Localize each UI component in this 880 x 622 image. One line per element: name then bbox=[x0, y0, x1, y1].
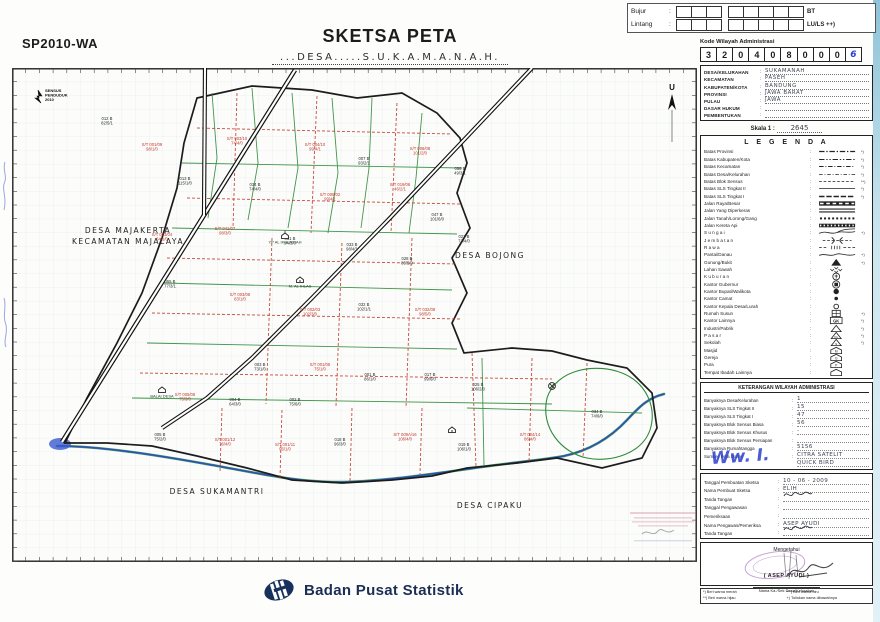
coord-suffix: BT bbox=[807, 9, 815, 15]
parcel-code: 86/4/0 bbox=[524, 437, 536, 442]
sketsa-label: Nama Pengawas/Pemeriksa bbox=[704, 523, 778, 528]
admin-fields-box: DESA/KELURAHAN:SUKAMANAHKECAMATAN:PASEHK… bbox=[700, 65, 873, 121]
sketsa-row: Tanda Tangan: bbox=[704, 528, 869, 537]
legend-item-note: *) bbox=[861, 333, 869, 338]
keterangan-value: 56 bbox=[797, 420, 869, 427]
sketsa-row: Pemeriksaan: bbox=[704, 510, 869, 519]
legend-item-label: Batas Kabupaten/Kota bbox=[704, 157, 810, 162]
kepala-desa-caption: Nama Ka./Sek Desa/Kelurahan bbox=[753, 587, 821, 593]
coord-cell bbox=[676, 6, 692, 18]
parcel-code: 49/3/1 bbox=[454, 171, 466, 176]
parcel-code: 98/3/0 bbox=[219, 231, 231, 236]
coord-cell bbox=[773, 6, 789, 18]
coord-cells bbox=[677, 19, 804, 31]
parcel-code: 99/6/0 bbox=[424, 377, 436, 382]
legend-item-label: Batas Kecamatan bbox=[704, 164, 810, 169]
legend-item-note: *) bbox=[861, 194, 869, 199]
sketsa-row: Tanggal Pembuatan Sketsa:10 - 06 - 2009 bbox=[704, 476, 869, 485]
keterangan-label: Banyaknya SLS Tingkat I bbox=[704, 414, 792, 419]
field-value: SUKAMANAH bbox=[765, 68, 869, 75]
coord-cell bbox=[788, 6, 804, 18]
coord-cell bbox=[758, 6, 774, 18]
coord-suffix: LU/LS ++) bbox=[807, 22, 835, 28]
coord-cell bbox=[773, 19, 789, 31]
legend-box: L E G E N D A Batas Provinsi:*)Batas Kab… bbox=[700, 135, 873, 379]
agency-name: Badan Pusat Statistik bbox=[304, 582, 464, 599]
legend-item-label: S u n g a i bbox=[704, 230, 810, 235]
field-label: KABUPATEN/KOTA bbox=[704, 85, 760, 90]
coord-label: Bujur bbox=[631, 8, 669, 15]
keterangan-value2: QUICK BIRD bbox=[797, 460, 869, 467]
coordinate-box: Bujur:BTLintang:LU/LS ++) bbox=[627, 3, 876, 33]
admin-field-row: DASAR HUKUM: bbox=[704, 104, 869, 111]
keterangan-row: Banyaknya SLS Tingkat II:15 bbox=[704, 403, 869, 411]
sketsa-row: Tanda Tangan: bbox=[704, 493, 869, 502]
parcel-code: 73/1/0 bbox=[254, 367, 266, 372]
code-digit: 0 bbox=[765, 48, 781, 61]
footer: Badan Pusat Statistik bbox=[262, 577, 464, 603]
sketsa-info-box: Tanggal Pembuatan Sketsa:10 - 06 - 2009N… bbox=[700, 473, 873, 539]
keterangan-row: Banyaknya SLS Tingkat I:47 bbox=[704, 411, 869, 419]
legend-item-label: R a w a bbox=[704, 245, 810, 250]
scale-value: 2645 bbox=[777, 124, 823, 133]
parcel-code: 98/4/1 bbox=[346, 247, 358, 252]
svg-text:U: U bbox=[669, 83, 675, 92]
legend-item-label: Batas Provinsi bbox=[704, 149, 810, 154]
parcel-code: 46/2/1 bbox=[394, 187, 406, 192]
field-label: PEMBENTUKAN bbox=[704, 113, 760, 118]
parcel-code: 77/3/1 bbox=[164, 284, 176, 289]
code-digit: 2 bbox=[717, 48, 733, 61]
legend-item-label: Gereja bbox=[704, 355, 810, 360]
page-title: SKETSA PETA bbox=[170, 26, 610, 47]
legend-item-label: Batas Desa/Kelurahan bbox=[704, 172, 810, 177]
code-digit: 6 bbox=[846, 48, 861, 61]
legend-item-note: *) bbox=[861, 149, 869, 154]
right-panel: Kode Wilayah Administrasi 3204080006 DES… bbox=[700, 38, 873, 604]
parcel-code: 75/6/0 bbox=[289, 402, 301, 407]
form-code: SP2010-WA bbox=[22, 36, 98, 51]
keterangan-label: Banyaknya Blok Sensus Biasa bbox=[704, 422, 792, 427]
lake-blob bbox=[49, 438, 71, 450]
field-label: KECAMATAN bbox=[704, 77, 760, 82]
code-digit: 0 bbox=[798, 48, 814, 61]
keterangan-value: 5156 bbox=[797, 444, 869, 451]
field-value: JAWA bbox=[765, 97, 869, 104]
map-canvas: SENSUSPENDUDUK2010 U DESA MAJAKERTAKECAM… bbox=[12, 68, 697, 562]
legend-item-symbol bbox=[815, 368, 861, 376]
field-label: DASAR HUKUM bbox=[704, 106, 760, 111]
coord-cell bbox=[728, 19, 744, 31]
admin-code-digits: 3204080006 bbox=[700, 47, 862, 62]
parcel-code: 106/2/0 bbox=[471, 387, 486, 392]
keterangan-value bbox=[797, 442, 869, 443]
parcel-code: 101/2/0 bbox=[413, 151, 428, 156]
keterangan-label: Banyaknya Blok Sensus Khusus bbox=[704, 430, 792, 435]
legend-item-note: *) bbox=[861, 157, 869, 162]
scale-row: Skala 1 : 2645 bbox=[700, 124, 873, 132]
parcel-code: 102/1/1 bbox=[357, 307, 372, 312]
keterangan-label: Banyaknya SLS Tingkat II bbox=[704, 406, 792, 411]
sketsa-label: Tanda Tangan bbox=[704, 531, 778, 536]
legend-item-note: **) bbox=[861, 179, 869, 184]
coord-cell bbox=[728, 6, 744, 18]
keterangan-value: - bbox=[797, 428, 869, 435]
keterangan-box: KETERANGAN WILAYAH ADMINISTRASI Banyakny… bbox=[700, 382, 873, 470]
legend-item-note: +) bbox=[861, 252, 869, 257]
scale-label: Skala 1 : bbox=[751, 126, 775, 132]
parcel-code: 75/3/0 bbox=[179, 397, 191, 402]
parcel-code: 99/4/1 bbox=[309, 147, 321, 152]
legend-item-note: +) bbox=[861, 311, 869, 316]
coord-cell bbox=[691, 19, 707, 31]
legend-title: L E G E N D A bbox=[704, 139, 869, 146]
coord-row: Bujur:BT bbox=[631, 5, 872, 18]
sketsa-label: Nama Pembuat Sketsa bbox=[704, 488, 778, 493]
sketsa-label: Pemeriksaan bbox=[704, 514, 778, 519]
coord-cell bbox=[691, 6, 707, 18]
parcel-code: 75/2/0 bbox=[154, 437, 166, 442]
coord-cell bbox=[758, 19, 774, 31]
legend-item-label: Masjid bbox=[704, 348, 810, 353]
parcel-code: 75/1/0 bbox=[314, 367, 326, 372]
admin-code-title: Kode Wilayah Administrasi bbox=[700, 39, 873, 45]
sketsa-label: Tanggal Pembuatan Sketsa bbox=[704, 480, 778, 485]
sketsa-value bbox=[783, 524, 869, 536]
keterangan-value: CITRA SATELIT bbox=[797, 452, 869, 459]
keterangan-label: Banyaknya Desa/Kelurahan bbox=[704, 398, 792, 403]
code-digit: 0 bbox=[733, 48, 749, 61]
parcel-code: 115/1/0 bbox=[178, 181, 192, 186]
field-value bbox=[765, 117, 869, 118]
legend-item-label: Kantor Kepala Desa/Lurah bbox=[704, 304, 810, 309]
coord-cell bbox=[743, 19, 759, 31]
sketsa-row: Tanggal Pengawasan: bbox=[704, 502, 869, 511]
keterangan-row: Banyaknya Blok Sensus Khusus:- bbox=[704, 427, 869, 435]
keterangan-value: 47 bbox=[797, 412, 869, 419]
keterangan-title: KETERANGAN WILAYAH ADMINISTRASI bbox=[704, 385, 869, 393]
field-label: DESA/KELURAHAN bbox=[704, 70, 760, 75]
legend-item-label: Batas Blok Sensus bbox=[704, 179, 810, 184]
legend-item-label: P a s a r bbox=[704, 333, 810, 338]
parcel-code: 64/1/0 bbox=[156, 237, 168, 242]
sketsa-value bbox=[783, 518, 869, 519]
admin-field-row: PEMBENTUKAN: bbox=[704, 111, 869, 118]
parcel-code: 99/4/1 bbox=[324, 197, 336, 202]
legend-item: Tempat Ibadah Lainnya: bbox=[704, 369, 869, 376]
legend-item-note: *) bbox=[861, 318, 869, 323]
legend-item-label: Jalan Yang Diperkeras bbox=[704, 208, 810, 213]
legend-item-label: Jalan Kereta Api bbox=[704, 223, 810, 228]
signature-squiggle bbox=[783, 524, 813, 533]
svg-text:2010: 2010 bbox=[45, 97, 55, 102]
parcel-code: 93/2/1 bbox=[358, 161, 370, 166]
legend-item-note: *) bbox=[861, 326, 869, 331]
legend-item-label: Pura bbox=[704, 362, 810, 367]
legend-item-label: Jalan Tanah/Lorong/Gang bbox=[704, 216, 810, 221]
coord-cell bbox=[676, 19, 692, 31]
legend-item-label: Tempat Ibadah Lainnya bbox=[704, 370, 810, 375]
legend-item-note: *) bbox=[861, 340, 869, 345]
mengetahui-box: Mengetahui ( ASEP AYUDI ) Nama Ka./Sek D… bbox=[700, 542, 873, 586]
keterangan-label: Banyaknya Blok Sensus Persiapan bbox=[704, 438, 792, 443]
legend-item-label: Batas SLS Tingkat I bbox=[704, 194, 810, 199]
margin-scrawl-1 bbox=[0, 158, 10, 218]
keterangan-value: 15 bbox=[797, 404, 869, 411]
legend-item-label: Kantor Lainnya bbox=[704, 318, 810, 323]
stamp-and-signature bbox=[729, 549, 849, 581]
legend-item-label: Rumah Susun bbox=[704, 311, 810, 316]
region-label: DESA SUKAMANTRI bbox=[170, 487, 265, 496]
parcel-code: 74/4/0 bbox=[231, 141, 243, 146]
legend-item-label: J e m b a t a n bbox=[704, 238, 810, 243]
handwritten-scrawl: Ww. I. bbox=[710, 445, 770, 469]
legend-item-note: *) bbox=[861, 172, 869, 177]
sketch-map: SENSUSPENDUDUK2010 U DESA MAJAKERTAKECAM… bbox=[12, 68, 697, 562]
bps-logo-icon bbox=[262, 577, 296, 603]
parcel-code: 83/5/0 bbox=[401, 261, 413, 266]
legend-item-label: K u b u r a n bbox=[704, 274, 810, 279]
legend-item-label: Pantai/Danau bbox=[704, 252, 810, 257]
legend-item-label: Lahan Sawah bbox=[704, 267, 810, 272]
sketsa-label: Tanggal Pengawasan bbox=[704, 505, 778, 510]
parcel-code: 101/6/0 bbox=[430, 217, 445, 222]
legend-item-label: Gunung/Bukit bbox=[704, 260, 810, 265]
coord-cell bbox=[743, 6, 759, 18]
coord-row: Lintang:LU/LS ++) bbox=[631, 18, 872, 31]
sketsa-label: Tanda Tangan bbox=[704, 497, 778, 502]
admin-field-row: KECAMATAN:PASEH bbox=[704, 75, 869, 82]
scan-edge-artifact bbox=[873, 0, 880, 622]
parcel-code: 83/1/0 bbox=[234, 297, 246, 302]
parcel-code: 102/3/0 bbox=[303, 312, 318, 317]
admin-field-row: PULAU:JAWA bbox=[704, 97, 869, 104]
parcel-code: 74/4/0 bbox=[249, 187, 261, 192]
code-digit: 8 bbox=[781, 48, 797, 61]
landmark-label: BALAI DESA bbox=[150, 393, 174, 398]
parcel-code: 73/4/0 bbox=[458, 239, 470, 244]
code-digit: 4 bbox=[749, 48, 765, 61]
keterangan-row: Banyaknya Blok Sensus Persiapan: bbox=[704, 435, 869, 443]
scanned-census-map-page: { "page": { "form_code": "SP2010-WA", "t… bbox=[0, 0, 880, 622]
parcel-code: 98/5/0 bbox=[419, 312, 431, 317]
admin-field-row: DESA/KELURAHAN:SUKAMANAH bbox=[704, 68, 869, 75]
parcel-code: 64/3/0 bbox=[229, 402, 241, 407]
legend-item-label: Jalan Raya/Besar bbox=[704, 201, 810, 206]
parcel-code: 86/1/0 bbox=[364, 377, 376, 382]
parcel-code: 98/1/0 bbox=[146, 147, 158, 152]
legend-item-note: *) bbox=[861, 186, 869, 191]
margin-scrawl-2 bbox=[0, 295, 10, 350]
sketsa-value: 10 - 06 - 2009 bbox=[783, 478, 869, 485]
coord-cells bbox=[677, 6, 804, 18]
legend-item-note: *) bbox=[861, 164, 869, 169]
landmark-label: M. AL IHLAS bbox=[289, 283, 312, 288]
code-digit: 3 bbox=[701, 48, 717, 61]
legend-item-label: Sekolah bbox=[704, 340, 810, 345]
parcel-code: 74/6/0 bbox=[591, 414, 603, 419]
parcel-code: 106/4/0 bbox=[398, 437, 413, 442]
parcel-code: 96/1/0 bbox=[279, 447, 291, 452]
legend-item-label: Industri/Pabrik bbox=[704, 326, 810, 331]
legend-item-note: +) bbox=[861, 230, 869, 235]
legend-item-label: Kantor Camat bbox=[704, 296, 810, 301]
keterangan-row: Banyaknya Desa/Kelurahan:1 bbox=[704, 395, 869, 403]
coord-cell bbox=[706, 19, 722, 31]
field-value: BANDUNG bbox=[765, 83, 869, 90]
field-label: PULAU bbox=[704, 99, 760, 104]
signature-squiggle bbox=[783, 490, 813, 499]
region-label: DESA BOJONG bbox=[455, 251, 525, 260]
keterangan-row: Banyaknya Blok Sensus Biasa:56 bbox=[704, 419, 869, 427]
legend-item-note: +) bbox=[861, 260, 869, 265]
parcel-code: 76/4/0 bbox=[219, 442, 231, 447]
field-label: PROVINSI bbox=[704, 92, 760, 97]
title-block: SKETSA PETA ...DESA.....S.U.K.A.M.A.N.A.… bbox=[170, 26, 610, 65]
legend-symbol-ibadah bbox=[815, 368, 861, 377]
sketsa-value bbox=[783, 509, 869, 510]
legend-item-label: Kantor Bupati/Walikota bbox=[704, 289, 810, 294]
parcel-code: 106/1/0 bbox=[457, 447, 472, 452]
parcel-code: 82/5/1 bbox=[101, 121, 113, 126]
field-value bbox=[765, 110, 869, 111]
coord-cell bbox=[706, 6, 722, 18]
sketsa-value bbox=[783, 490, 869, 502]
keterangan-value: 1 bbox=[797, 396, 869, 403]
admin-field-row: PROVINSI:JAWA BARAT bbox=[704, 90, 869, 97]
legend-item-label: Kantor Gubernur bbox=[704, 282, 810, 287]
parcel-code: 96/3/0 bbox=[334, 442, 346, 447]
landmark-label: YP AL IKHLASIAH bbox=[269, 239, 302, 244]
code-digit: 0 bbox=[830, 48, 846, 61]
legend-item-label: Batas SLS Tingkat II bbox=[704, 186, 810, 191]
page-subtitle: ...DESA.....S.U.K.A.M.A.N.A.H. bbox=[272, 52, 508, 65]
field-value: JAWA BARAT bbox=[765, 90, 869, 97]
region-label: DESA CIPAKU bbox=[457, 501, 523, 510]
field-value: PASEH bbox=[765, 75, 869, 82]
coord-label: Lintang bbox=[631, 21, 669, 28]
admin-field-row: KABUPATEN/KOTA:BANDUNG bbox=[704, 82, 869, 89]
coord-cell bbox=[788, 19, 804, 31]
code-digit: 0 bbox=[814, 48, 830, 61]
